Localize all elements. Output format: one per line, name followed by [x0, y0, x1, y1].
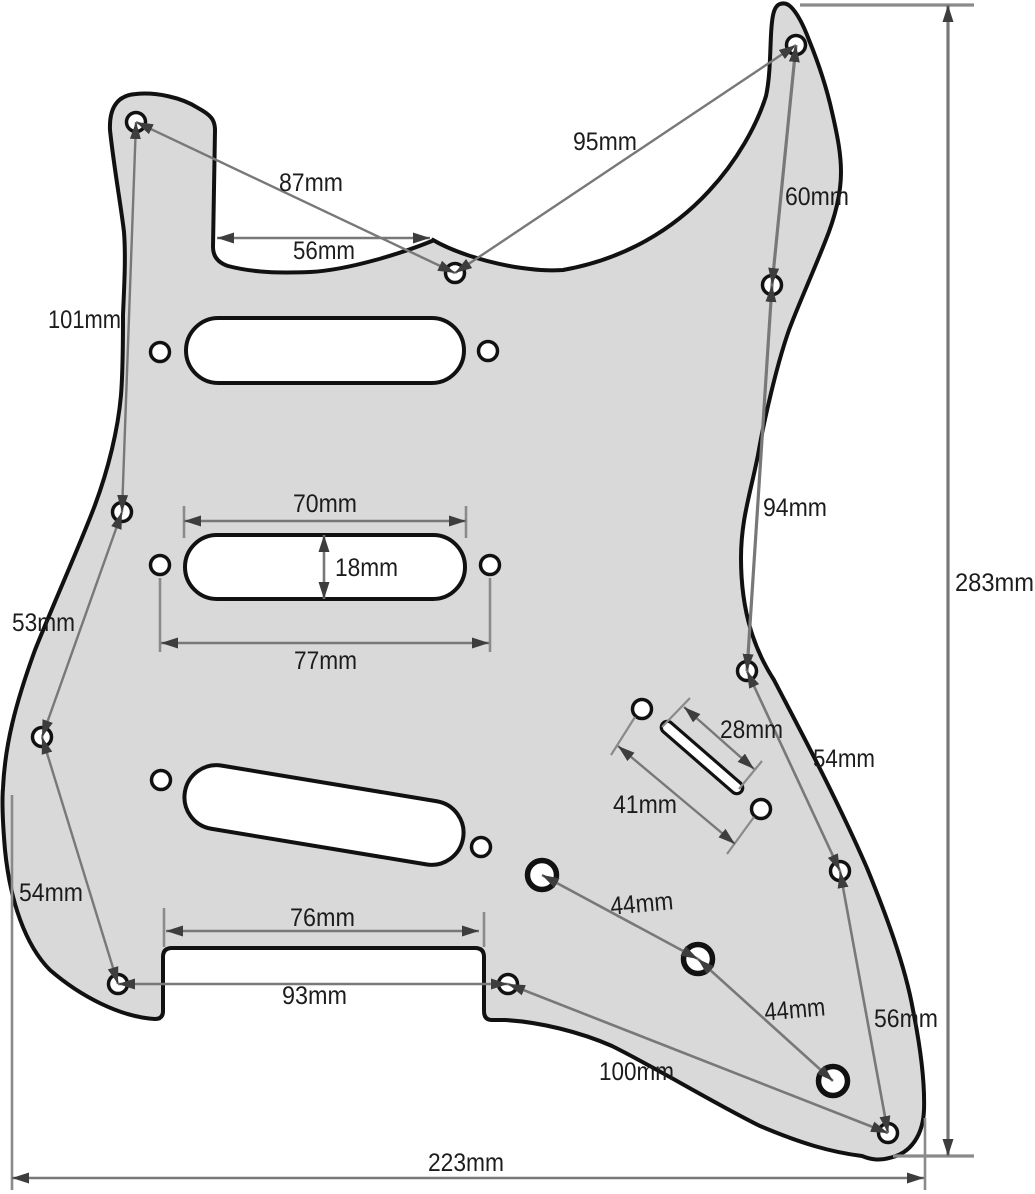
- svg-text:60mm: 60mm: [785, 183, 849, 211]
- svg-text:101mm: 101mm: [48, 306, 121, 334]
- svg-text:94mm: 94mm: [763, 494, 827, 522]
- svg-text:28mm: 28mm: [720, 716, 783, 744]
- svg-text:77mm: 77mm: [294, 647, 357, 675]
- svg-text:95mm: 95mm: [573, 128, 637, 156]
- svg-text:283mm: 283mm: [955, 569, 1034, 597]
- svg-text:56mm: 56mm: [874, 1005, 938, 1033]
- svg-text:44mm: 44mm: [609, 887, 674, 920]
- svg-text:44mm: 44mm: [763, 993, 826, 1026]
- svg-text:87mm: 87mm: [279, 169, 343, 197]
- svg-text:18mm: 18mm: [335, 554, 398, 582]
- svg-text:54mm: 54mm: [19, 879, 83, 907]
- svg-text:54mm: 54mm: [813, 745, 875, 773]
- svg-text:70mm: 70mm: [293, 490, 357, 518]
- svg-text:93mm: 93mm: [282, 982, 347, 1010]
- svg-text:53mm: 53mm: [12, 609, 75, 637]
- svg-text:100mm: 100mm: [599, 1058, 674, 1086]
- svg-text:76mm: 76mm: [290, 904, 355, 932]
- svg-text:56mm: 56mm: [293, 237, 355, 265]
- svg-text:41mm: 41mm: [613, 791, 677, 819]
- svg-text:223mm: 223mm: [428, 1149, 504, 1177]
